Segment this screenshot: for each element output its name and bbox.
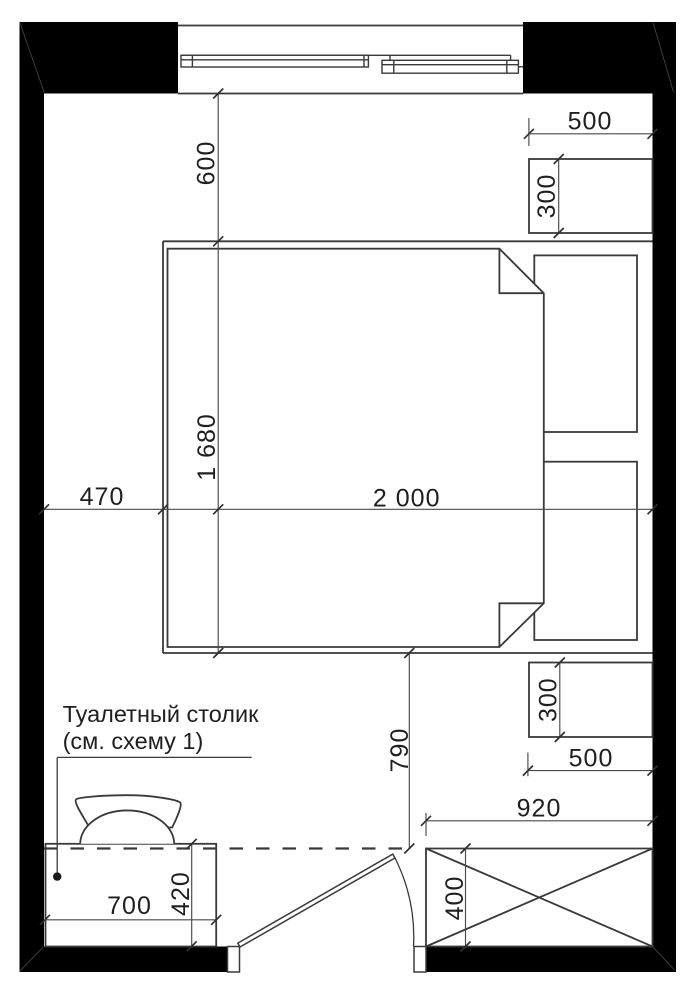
svg-text:400: 400: [441, 876, 469, 921]
svg-text:600: 600: [193, 141, 221, 186]
svg-text:500: 500: [569, 745, 614, 773]
svg-text:2 000: 2 000: [373, 485, 441, 513]
svg-text:300: 300: [534, 677, 562, 722]
svg-text:500: 500: [568, 108, 613, 136]
svg-text:(см. схему 1): (см. схему 1): [63, 728, 204, 754]
svg-text:790: 790: [386, 728, 414, 773]
svg-text:470: 470: [80, 483, 125, 511]
svg-text:Туалетный столик: Туалетный столик: [63, 701, 260, 727]
svg-text:1 680: 1 680: [193, 413, 221, 481]
svg-text:300: 300: [533, 174, 561, 219]
svg-text:420: 420: [167, 871, 195, 916]
svg-text:700: 700: [107, 892, 152, 920]
svg-text:920: 920: [517, 795, 562, 823]
